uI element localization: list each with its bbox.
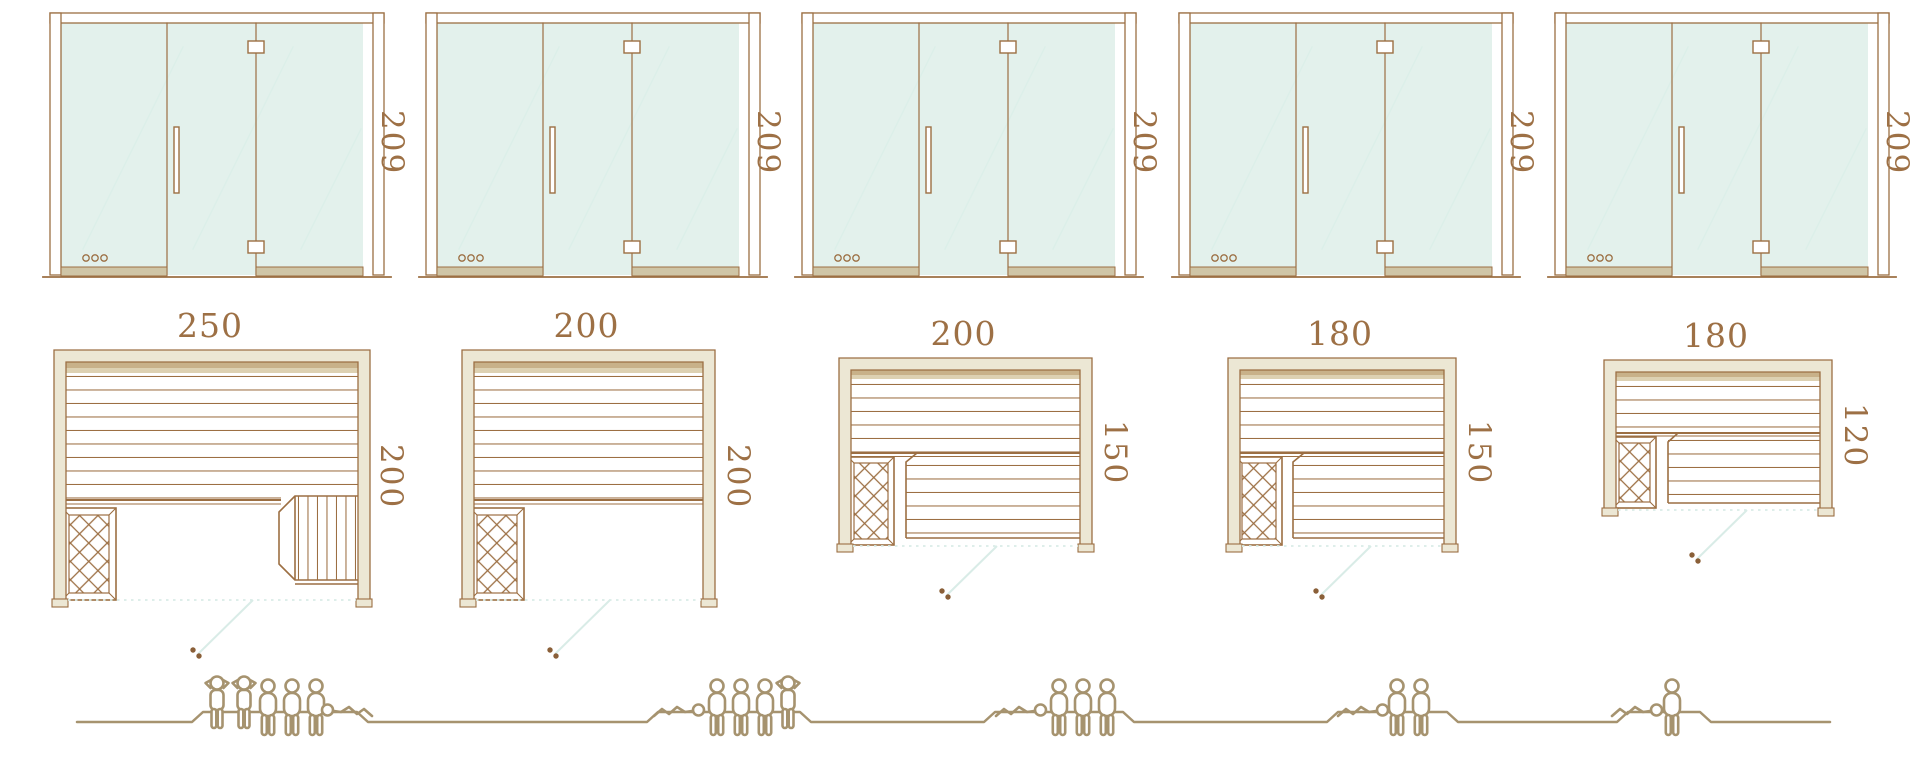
person-lying-icon [1338, 705, 1388, 717]
plan-width-label: 200 [837, 314, 1090, 354]
door-height-label: 209 [1880, 90, 1914, 196]
sauna-size-diagram: 209 250 200 209 200 200 209 200 150 209 … [0, 0, 1920, 764]
person-sitting-icon [1099, 680, 1115, 736]
ground-line [77, 712, 1830, 722]
person-sitting-icon [1075, 680, 1091, 736]
sauna-unit-3: 209 200 150 [775, 0, 1151, 764]
plan-width-label: 180 [1602, 316, 1830, 356]
person-standing-icon [777, 677, 800, 729]
floor-plan [1602, 360, 1834, 572]
door-elevation [1548, 11, 1896, 281]
person-sitting-icon [1413, 680, 1429, 736]
plan-depth-label: 120 [1838, 360, 1872, 512]
plan-width-label: 180 [1226, 314, 1454, 354]
sauna-unit-5: 209 180 120 [1528, 0, 1904, 764]
plan-depth-label: 150 [1462, 358, 1496, 548]
sauna-unit-1: 209 250 200 [23, 0, 399, 764]
people-capacity-group-2 [654, 677, 800, 736]
capacity-strip [0, 664, 1920, 764]
floor-plan [837, 358, 1094, 608]
person-sitting-icon [709, 680, 725, 736]
door-elevation [43, 11, 391, 281]
plan-width-label: 200 [460, 306, 713, 346]
people-capacity-group-4 [1338, 680, 1429, 736]
person-lying-icon [1612, 705, 1662, 717]
person-sitting-icon [1389, 680, 1405, 736]
floor-plan [52, 350, 372, 670]
plan-depth-label: 200 [721, 350, 755, 603]
sauna-unit-4: 209 180 150 [1152, 0, 1528, 764]
people-capacity-group-1 [206, 677, 373, 736]
person-sitting-icon [733, 680, 749, 736]
floor-plan [1226, 358, 1458, 608]
person-sitting-icon [1051, 680, 1067, 736]
person-lying-icon [996, 705, 1046, 717]
plan-depth-label: 150 [1098, 358, 1132, 548]
person-sitting-icon [260, 680, 276, 736]
person-standing-icon [233, 677, 256, 729]
door-elevation [419, 11, 767, 281]
people-capacity-group-5 [1612, 680, 1680, 736]
person-sitting-icon [284, 680, 300, 736]
person-lying-icon [654, 705, 704, 717]
person-sitting-icon [1664, 680, 1680, 736]
plan-width-label: 250 [52, 306, 368, 346]
person-lying-icon [322, 705, 372, 717]
people-capacity-group-3 [996, 680, 1115, 736]
person-standing-icon [206, 677, 229, 729]
door-elevation [1172, 11, 1520, 281]
person-sitting-icon [757, 680, 773, 736]
sauna-unit-2: 209 200 200 [399, 0, 775, 764]
floor-plan [460, 350, 717, 670]
door-elevation [795, 11, 1143, 281]
